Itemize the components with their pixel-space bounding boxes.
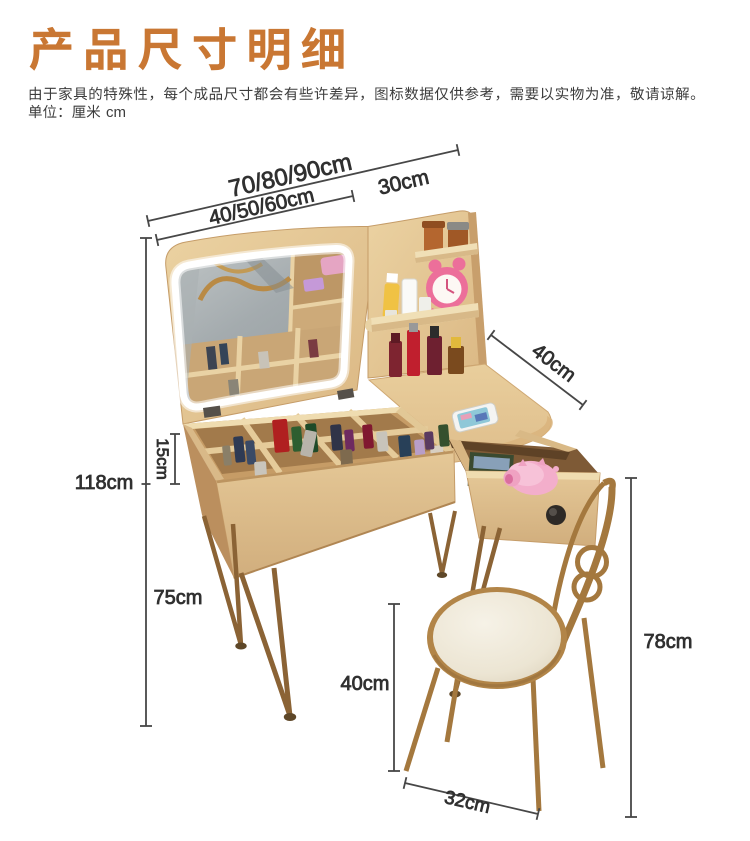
svg-text:78cm: 78cm — [644, 631, 693, 653]
svg-text:118cm: 118cm — [75, 472, 134, 494]
svg-text:40cm: 40cm — [341, 673, 390, 695]
svg-text:75cm: 75cm — [154, 587, 203, 609]
svg-text:32cm: 32cm — [442, 787, 492, 818]
svg-text:40cm: 40cm — [527, 340, 579, 387]
svg-text:15cm: 15cm — [153, 438, 172, 480]
svg-text:30cm: 30cm — [376, 166, 431, 200]
svg-text:cm: cm — [106, 104, 126, 121]
